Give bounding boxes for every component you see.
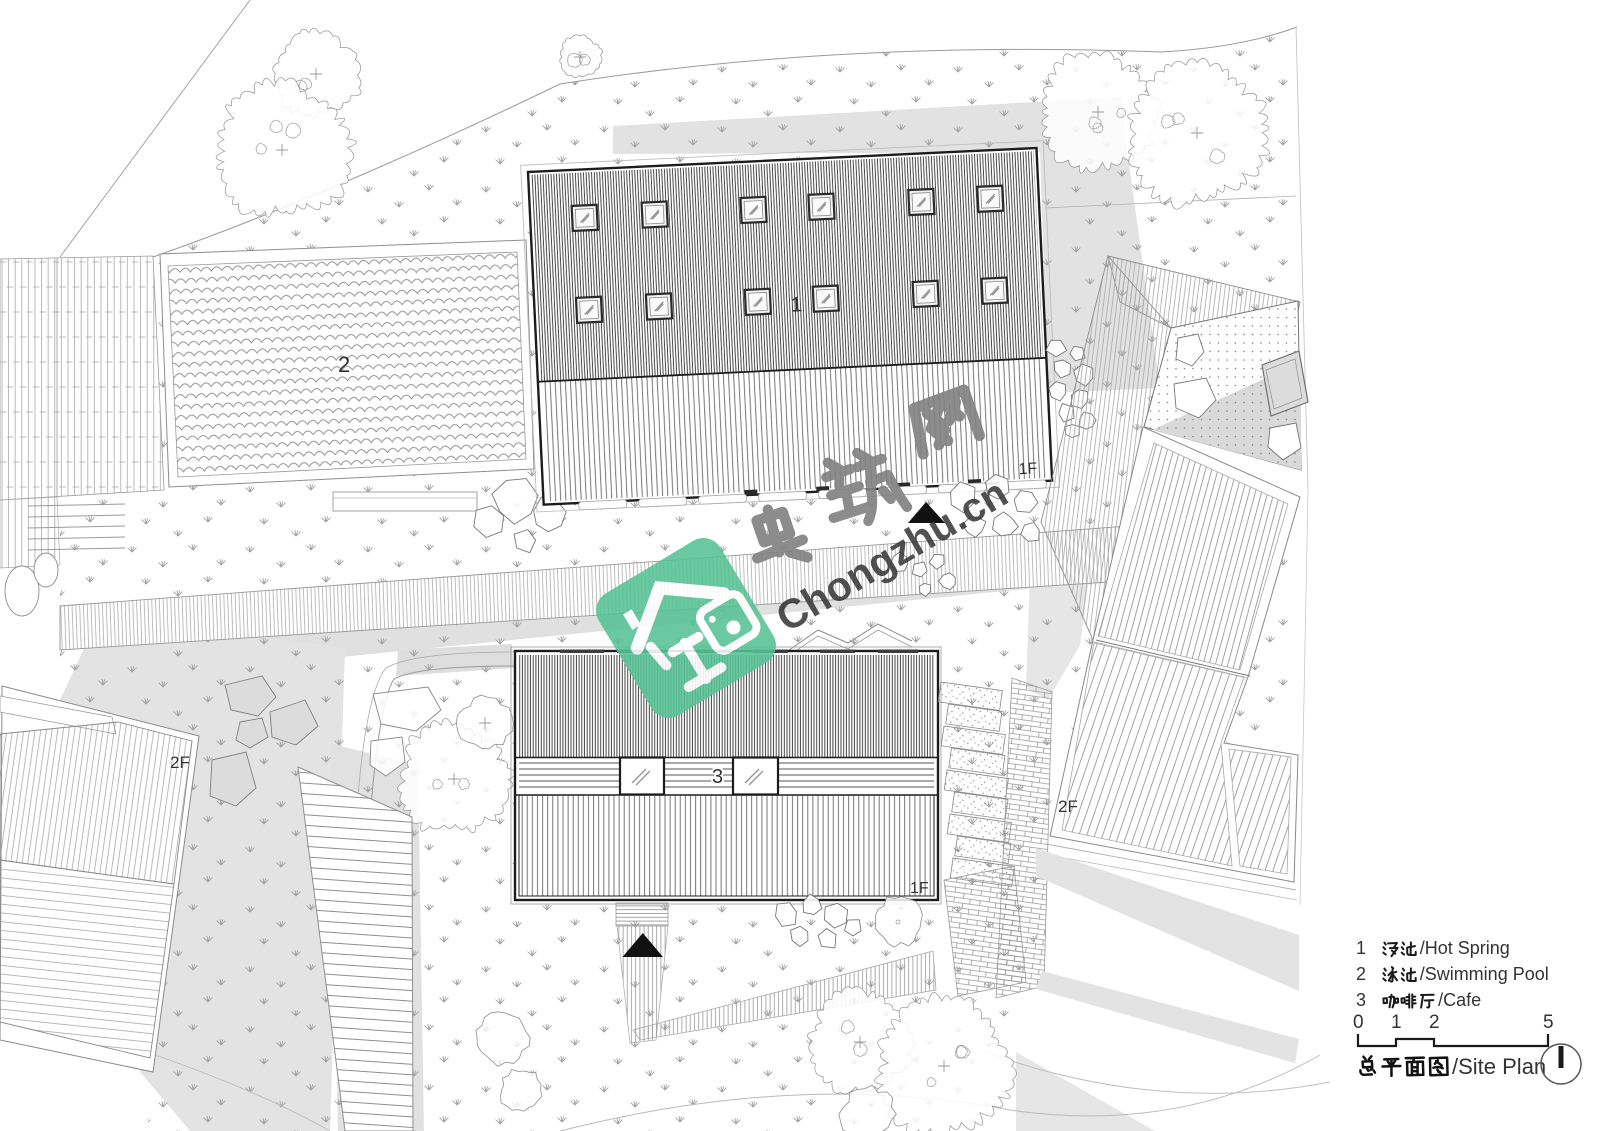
svg-text:2F: 2F <box>1058 797 1078 816</box>
svg-text:3: 3 <box>1356 990 1366 1010</box>
svg-text:1F: 1F <box>1018 460 1038 478</box>
svg-text:3: 3 <box>712 766 723 788</box>
svg-text:2F: 2F <box>170 753 190 772</box>
svg-text:/Hot Spring: /Hot Spring <box>1420 938 1510 958</box>
svg-text:/Cafe: /Cafe <box>1438 990 1481 1010</box>
svg-text:1: 1 <box>1356 938 1366 958</box>
svg-text:2: 2 <box>1429 1012 1440 1033</box>
svg-text:/Swimming Pool: /Swimming Pool <box>1420 964 1549 984</box>
svg-text:/Site Plan: /Site Plan <box>1452 1054 1546 1079</box>
svg-text:2: 2 <box>338 352 350 377</box>
svg-text:1F: 1F <box>910 880 929 897</box>
svg-text:0: 0 <box>1353 1012 1364 1033</box>
svg-text:1: 1 <box>790 293 803 317</box>
svg-text:2: 2 <box>1356 964 1366 984</box>
svg-text:1: 1 <box>1391 1012 1402 1033</box>
svg-text:5: 5 <box>1543 1012 1554 1033</box>
